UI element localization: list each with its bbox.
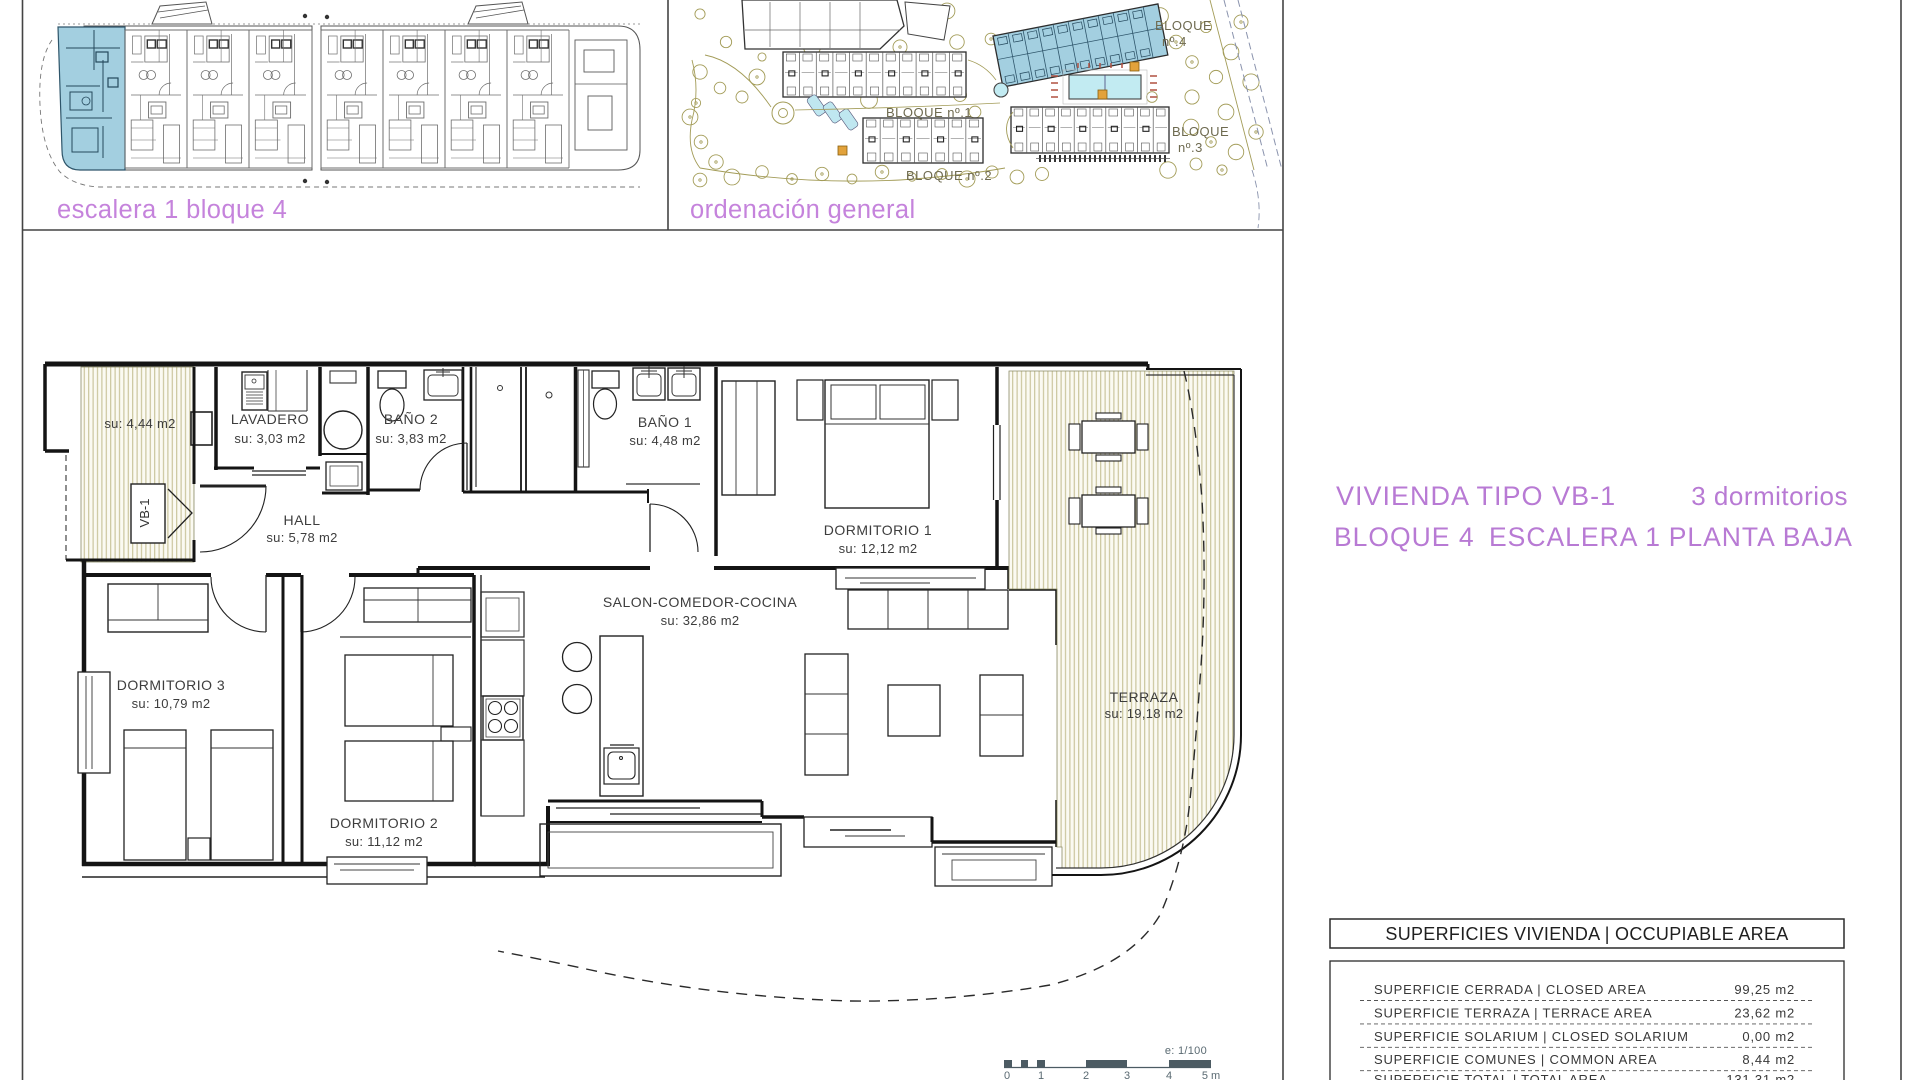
svg-text:SUPERFICIE COMUNES | COMMON AR: SUPERFICIE COMUNES | COMMON AREA — [1374, 1052, 1657, 1067]
svg-text:ordenación general: ordenación general — [690, 196, 916, 224]
svg-text:su: 4,48 m2: su: 4,48 m2 — [629, 433, 700, 448]
svg-text:e: 1/100: e: 1/100 — [1165, 1045, 1207, 1057]
svg-text:2: 2 — [1083, 1070, 1089, 1080]
svg-text:DORMITORIO 1: DORMITORIO 1 — [824, 522, 932, 538]
svg-text:4: 4 — [1166, 1070, 1172, 1080]
svg-text:99,25 m2: 99,25 m2 — [1734, 982, 1795, 997]
svg-text:su: 10,79 m2: su: 10,79 m2 — [132, 696, 211, 711]
svg-text:BLOQUE nº.2: BLOQUE nº.2 — [906, 168, 992, 183]
svg-text:ESCALERA 1: ESCALERA 1 — [1489, 522, 1661, 552]
svg-text:BLOQUE: BLOQUE — [1172, 124, 1229, 139]
svg-text:BLOQUE 4: BLOQUE 4 — [1334, 522, 1475, 552]
svg-text:su: 5,78 m2: su: 5,78 m2 — [266, 530, 337, 545]
svg-text:escalera 1 bloque 4: escalera 1 bloque 4 — [57, 196, 287, 224]
svg-text:su: 12,12 m2: su: 12,12 m2 — [839, 541, 918, 556]
svg-text:8,44 m2: 8,44 m2 — [1742, 1052, 1795, 1067]
svg-text:su: 32,86 m2: su: 32,86 m2 — [661, 613, 740, 628]
svg-text:su: 4,44 m2: su: 4,44 m2 — [104, 416, 175, 431]
svg-text:SUPERFICIE TOTAL | TOTAL AREA: SUPERFICIE TOTAL | TOTAL AREA — [1374, 1072, 1608, 1080]
svg-text:DORMITORIO 3: DORMITORIO 3 — [117, 677, 225, 693]
svg-text:SUPERFICIE TERRAZA | TERRACE: SUPERFICIE TERRAZA | TERRACE AREA — [1374, 1005, 1653, 1020]
svg-text:23,62 m2: 23,62 m2 — [1734, 1005, 1795, 1020]
svg-text:131,31 m2: 131,31 m2 — [1726, 1072, 1795, 1080]
svg-text:3: 3 — [1124, 1070, 1130, 1080]
svg-text:BAÑO 2: BAÑO 2 — [384, 411, 438, 427]
svg-text:DORMITORIO 2: DORMITORIO 2 — [330, 815, 438, 831]
svg-text:VIVIENDA TIPO VB-1: VIVIENDA TIPO VB-1 — [1336, 481, 1616, 511]
svg-text:1: 1 — [1038, 1070, 1044, 1080]
svg-text:5 m: 5 m — [1202, 1070, 1220, 1080]
svg-text:BLOQUE nº.1: BLOQUE nº.1 — [886, 105, 972, 120]
svg-text:HALL: HALL — [283, 512, 320, 528]
svg-text:BAÑO 1: BAÑO 1 — [638, 414, 692, 430]
svg-text:SUPERFICIES VIVIENDA | OCCUPIA: SUPERFICIES VIVIENDA | OCCUPIABLE AREA — [1385, 924, 1788, 944]
svg-text:BLOQUE: BLOQUE — [1155, 18, 1212, 33]
svg-text:0,00 m2: 0,00 m2 — [1742, 1029, 1795, 1044]
svg-text:TERRAZA: TERRAZA — [1110, 689, 1179, 705]
svg-text:su: 3,03 m2: su: 3,03 m2 — [234, 431, 305, 446]
svg-text:su: 11,12 m2: su: 11,12 m2 — [345, 834, 423, 849]
svg-text:VB-1: VB-1 — [137, 499, 152, 528]
svg-text:SUPERFICIE CERRADA | CLOSED AR: SUPERFICIE CERRADA | CLOSED AREA — [1374, 982, 1646, 997]
svg-text:nº.4: nº.4 — [1162, 34, 1187, 49]
svg-text:su: 19,18 m2: su: 19,18 m2 — [1105, 706, 1184, 721]
svg-text:su: 3,83 m2: su: 3,83 m2 — [375, 431, 446, 446]
svg-text:SALON-COMEDOR-COCINA: SALON-COMEDOR-COCINA — [603, 594, 798, 610]
svg-text:PLANTA BAJA: PLANTA BAJA — [1669, 522, 1853, 552]
svg-text:3 dormitorios: 3 dormitorios — [1691, 481, 1848, 511]
svg-text:LAVADERO: LAVADERO — [231, 411, 309, 427]
svg-text:nº.3: nº.3 — [1178, 140, 1203, 155]
svg-text:0: 0 — [1004, 1070, 1010, 1080]
svg-text:SUPERFICIE SOLARIUM | CLOSED S: SUPERFICIE SOLARIUM | CLOSED SOLARIUM — [1374, 1029, 1689, 1044]
